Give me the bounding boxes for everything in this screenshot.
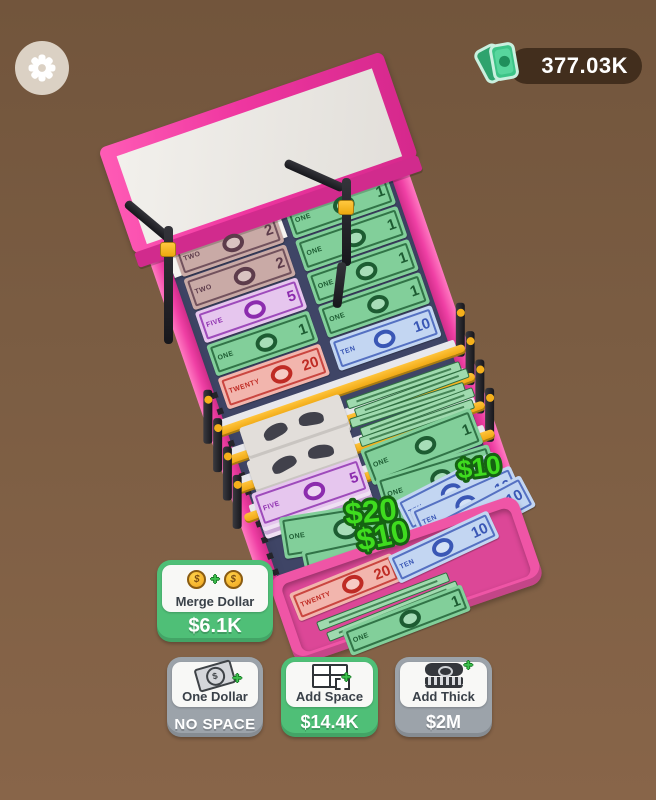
- plus-icon: +: [233, 671, 242, 687]
- plus-icon: +: [342, 670, 351, 686]
- cash-icon: [475, 40, 527, 92]
- settings-button[interactable]: [15, 41, 69, 95]
- coin-icon: $: [224, 570, 243, 589]
- coin-icon: $: [187, 570, 206, 589]
- add-thick-button[interactable]: + Add Thick $2M: [395, 657, 492, 737]
- balance-pill: 377.03K: [509, 48, 642, 84]
- arm-joint: [338, 200, 354, 215]
- plus-icon: +: [210, 572, 219, 588]
- grid-icon: +: [286, 662, 373, 689]
- gear-icon: [25, 51, 59, 85]
- svg-text:$10: $10: [354, 513, 412, 558]
- add-space-button[interactable]: + Add Space $14.4K: [281, 657, 378, 737]
- add-thick-panel: + Add Thick: [400, 662, 487, 707]
- merge-coins-icon: $ + $: [162, 565, 268, 594]
- one-dollar-price: NO SPACE: [167, 716, 263, 733]
- add-space-label: Add Space: [296, 689, 363, 704]
- gate-post: [223, 446, 232, 500]
- one-dollar-button[interactable]: $ + One Dollar NO SPACE: [167, 657, 263, 737]
- gate-post: [233, 475, 242, 529]
- merge-dollar-panel: $ + $ Merge Dollar: [162, 565, 268, 612]
- arm-joint: [160, 242, 176, 257]
- balance-amount: 377.03K: [541, 53, 628, 79]
- one-dollar-label: One Dollar: [182, 689, 248, 704]
- cash-bill-front: [488, 41, 520, 82]
- add-thick-price: $2M: [395, 712, 492, 733]
- gate-post: [213, 418, 222, 472]
- plus-icon: +: [464, 658, 473, 674]
- merge-dollar-button[interactable]: $ + $ Merge Dollar $6.1K: [157, 560, 273, 642]
- one-dollar-panel: $ + One Dollar: [172, 662, 258, 707]
- arm-rod: [342, 178, 351, 266]
- add-space-price: $14.4K: [281, 712, 378, 733]
- dollar-bill-icon: $ +: [172, 662, 258, 689]
- game-screen: TWO2ONE1TWO2ONE1FIVE5ONE1ONE1ONE1TWENTY2…: [0, 0, 656, 800]
- add-thick-label: Add Thick: [412, 689, 475, 704]
- add-space-panel: + Add Space: [286, 662, 373, 707]
- merge-dollar-label: Merge Dollar: [176, 594, 255, 609]
- svg-text:$10: $10: [455, 449, 502, 485]
- merge-dollar-price: $6.1K: [157, 615, 273, 638]
- gate-post: [203, 390, 212, 444]
- stack-icon: +: [400, 662, 487, 689]
